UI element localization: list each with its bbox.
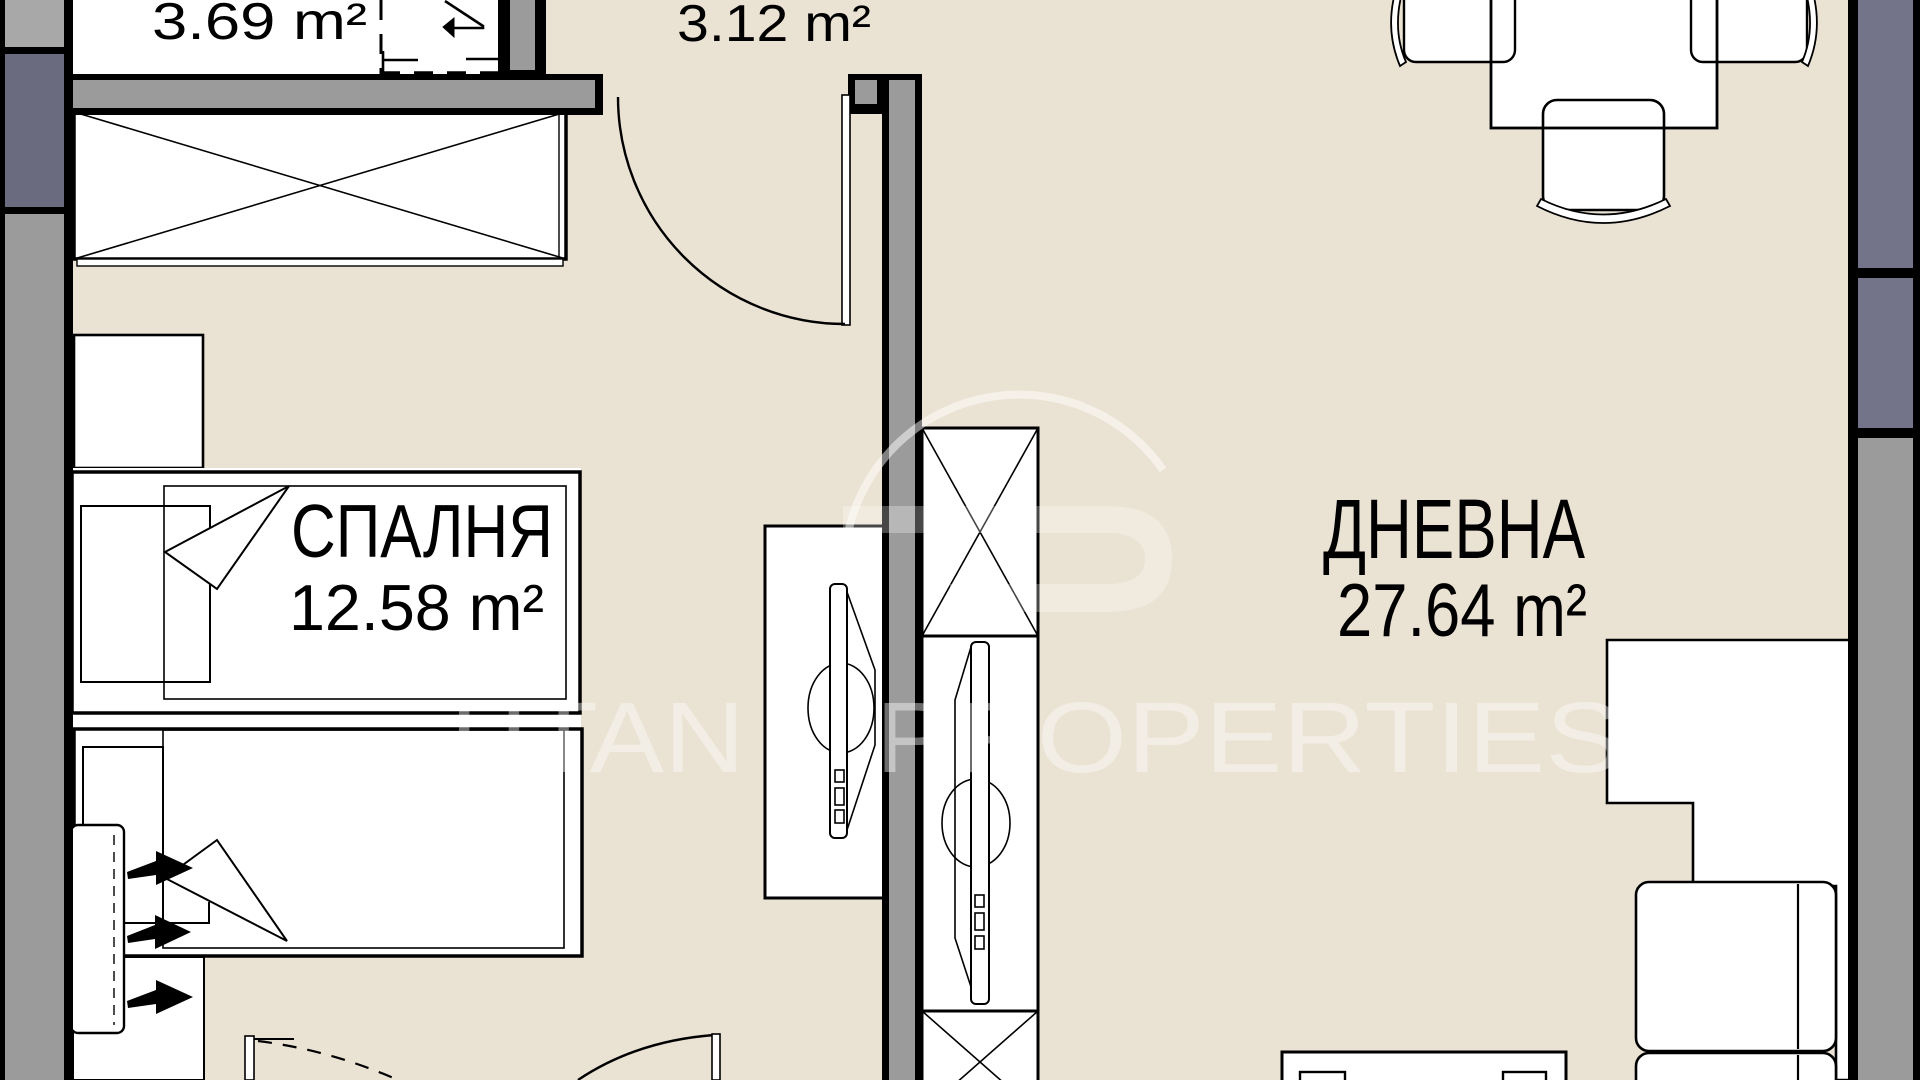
svg-text:PROPERTIES: PROPERTIES — [875, 682, 1623, 794]
svg-text:TITAN: TITAN — [430, 682, 745, 794]
svg-text:12.58 m²: 12.58 m² — [289, 571, 544, 644]
svg-text:27.64 m²: 27.64 m² — [1337, 568, 1587, 652]
svg-text:СПАЛНЯ: СПАЛНЯ — [291, 489, 553, 573]
svg-text:3.69 m²: 3.69 m² — [152, 0, 367, 51]
svg-text:3.12 m²: 3.12 m² — [677, 0, 871, 53]
svg-text:ДНЕВНА: ДНЕВНА — [1323, 482, 1585, 576]
